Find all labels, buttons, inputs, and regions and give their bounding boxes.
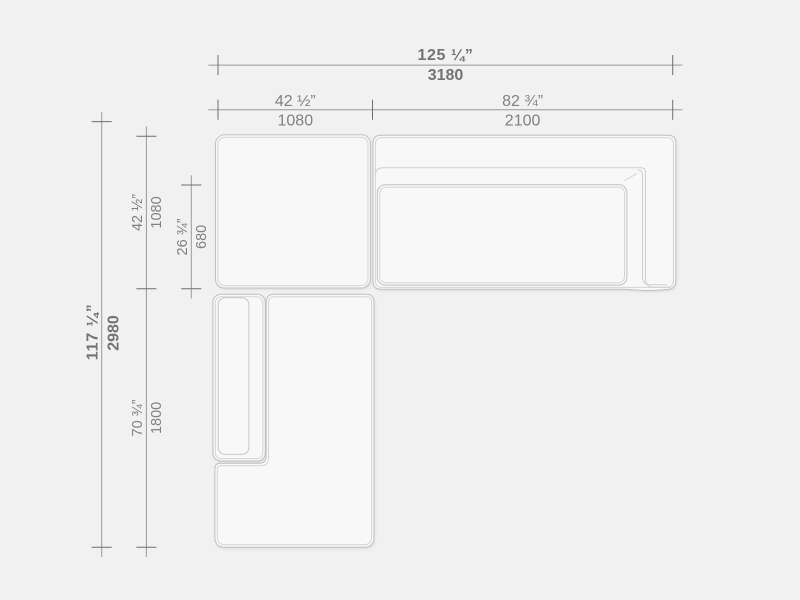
- svg-text:42 ½”: 42 ½”: [275, 93, 316, 110]
- svg-text:1080: 1080: [278, 112, 314, 129]
- svg-text:680: 680: [194, 225, 210, 249]
- svg-text:1080: 1080: [149, 196, 165, 228]
- svg-text:125 ¼”: 125 ¼”: [417, 47, 473, 64]
- svg-text:2100: 2100: [505, 112, 541, 129]
- svg-text:2980: 2980: [106, 315, 123, 351]
- svg-text:70 ¾”: 70 ¾”: [130, 399, 146, 436]
- svg-text:1800: 1800: [149, 402, 165, 434]
- svg-text:117 ¼”: 117 ¼”: [84, 303, 101, 360]
- svg-text:26 ¾”: 26 ¾”: [175, 218, 191, 255]
- svg-text:82 ¾”: 82 ¾”: [502, 93, 543, 110]
- svg-text:3180: 3180: [428, 67, 464, 84]
- svg-text:42 ½”: 42 ½”: [130, 194, 146, 231]
